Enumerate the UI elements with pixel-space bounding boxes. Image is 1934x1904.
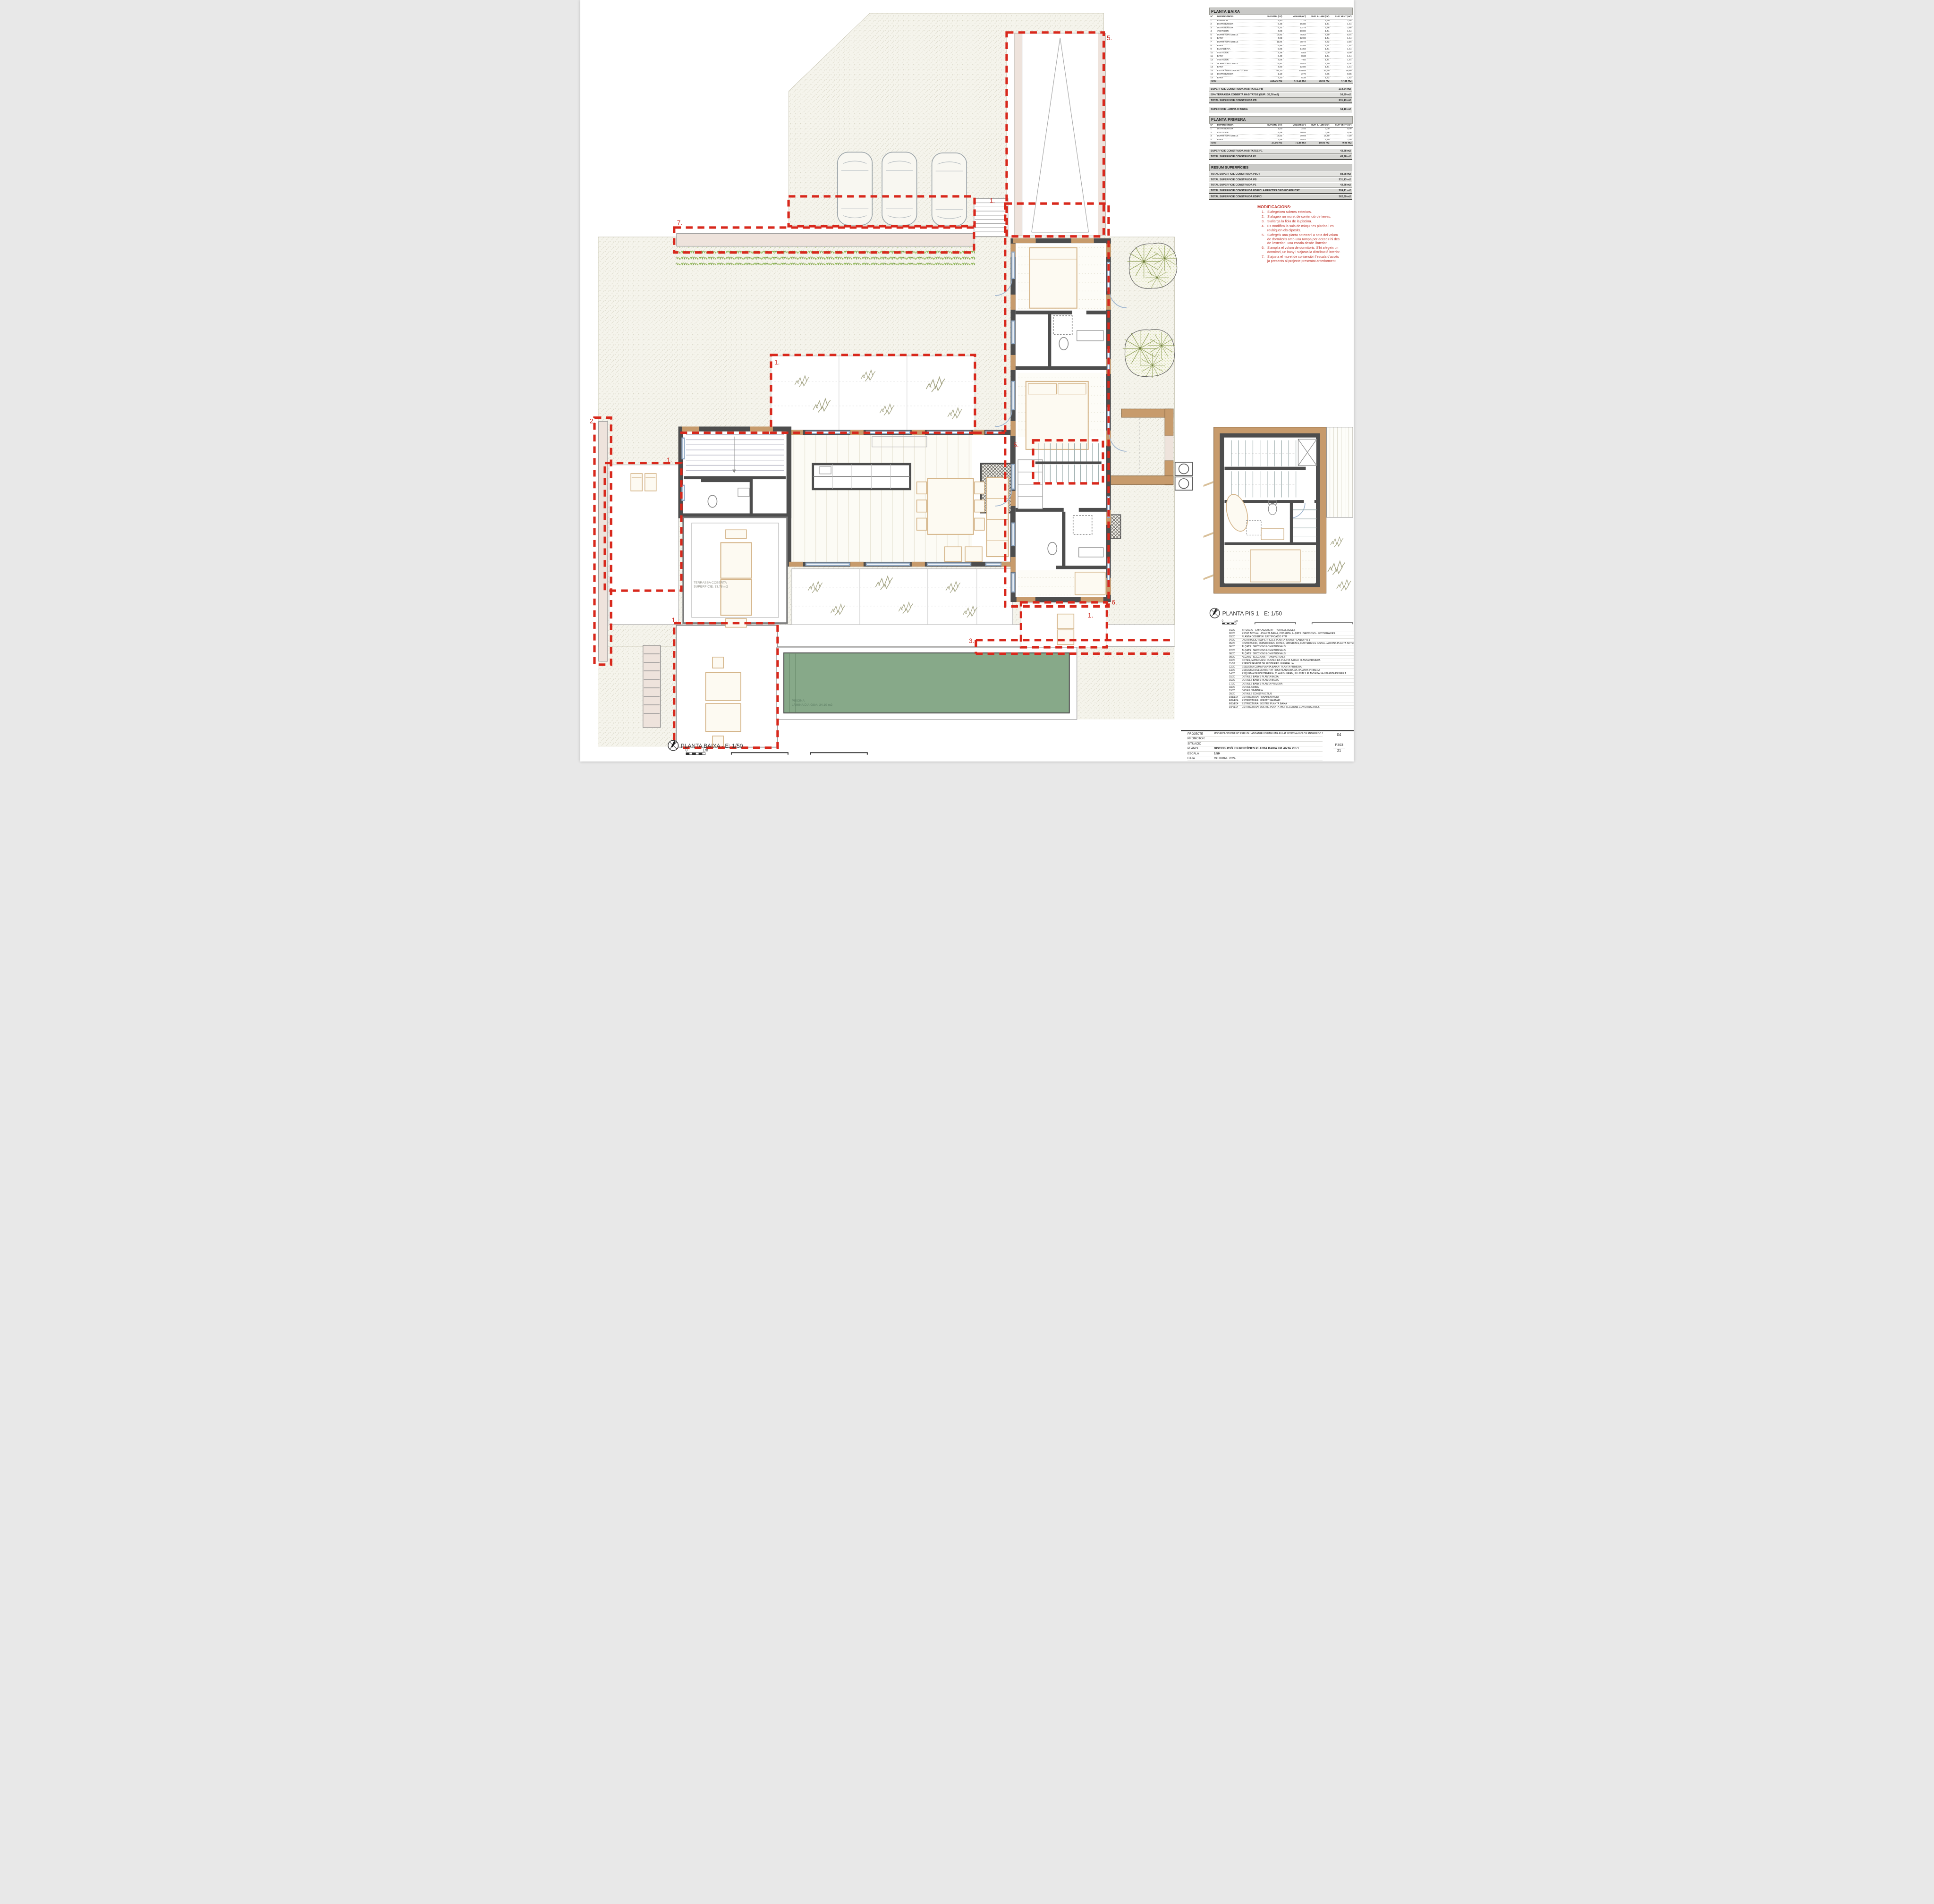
resum-title: RESUM SUPERFÍCIES bbox=[1209, 164, 1352, 171]
table-row: 8BANY5,9514,581,441,44 bbox=[1210, 44, 1353, 48]
summary-row: TOTAL SUPERFÍCIE CONSTRUÏDA EDIFICI A EF… bbox=[1209, 189, 1352, 194]
modification-item: S'afegeixen soleres exteriors. bbox=[1265, 210, 1342, 214]
modification-item: Es modifica la sala de màquines piscina … bbox=[1265, 224, 1342, 232]
kitchen-island bbox=[813, 464, 910, 489]
retaining-wall bbox=[677, 233, 974, 246]
pergola-south bbox=[792, 569, 1013, 625]
living-wing bbox=[789, 430, 1013, 567]
promoter-row: PROMOTOR bbox=[1188, 736, 1323, 741]
exterior-stair-left bbox=[643, 645, 661, 728]
drawing-index-row: E04/E04ESTRUCTURA: SOSTRE PLANTA PIS I S… bbox=[1229, 706, 1354, 709]
summary-row: SUPERFÍCIE CONSTRUÏDA HABITATGE PB214,24… bbox=[1209, 87, 1352, 92]
drawing-index-row: 01/20SITUACIÓ - EMPLAÇAMENT - PORTELL AC… bbox=[1229, 629, 1354, 632]
table-row: 16DISTRIBUÏDOR1,102,700,360,36 bbox=[1210, 73, 1353, 76]
drawing-index-row: 06/20ALÇATS I SECCIONS LONGITUDINALS bbox=[1229, 645, 1354, 649]
column-header: VOLUM (m³) bbox=[1283, 123, 1307, 127]
table-row: 2VESTIDOR4,4810,930,360,36 bbox=[1210, 131, 1353, 135]
table-row: 12VESTIDOR3,067,501,441,44 bbox=[1210, 59, 1353, 62]
table-row: TOTALS27,56 m271,88 m319,56 m29,96 m2 bbox=[1210, 142, 1353, 146]
table-row: 1REBEDOR4,8011,769,602,16 bbox=[1210, 19, 1353, 23]
summary-row: TOTAL SUPERFÍCIE CONSTRUÏDA PSOT88,28 m2 bbox=[1209, 172, 1352, 177]
drawing-sheet: 0 1m bbox=[580, 0, 1354, 762]
drawing-index-row: 09/20ALÇATS I SECCIONS TRANSVERSALS bbox=[1229, 656, 1354, 659]
drawing-index-row: 05/20DISTRIBUCIÓ, SUPERFÍCIES, COTES, MA… bbox=[1229, 642, 1354, 645]
drawing-index-row: 12/20ESQUEMA CLIMA PLANTA BAIXA I PLANTA… bbox=[1229, 666, 1354, 669]
drawing-index-row: E03/E04ESTRUCTURA: SOSTRE PLANTA BAIXA bbox=[1229, 702, 1354, 706]
callout-5b: 5. bbox=[1013, 441, 1018, 448]
bedroom-wing bbox=[995, 238, 1127, 602]
drawing-index: 01/20SITUACIÓ - EMPLAÇAMENT - PORTELL AC… bbox=[1229, 629, 1354, 709]
column-header: VOLUM (m³) bbox=[1283, 15, 1307, 19]
location-row: SITUACIÓ bbox=[1188, 742, 1323, 746]
dining-set bbox=[917, 478, 984, 534]
covered-terrace: TERRASSA COBERTA SUPERFÍCIE: 33,78 m2 bbox=[683, 517, 787, 627]
column-header: SUP. VENT (m²) bbox=[1331, 15, 1353, 19]
pis1-bed bbox=[1250, 550, 1300, 582]
drawing-index-row: 11/20ESPECEJAMENT DE FUSTERIES I FERRALL… bbox=[1229, 662, 1354, 666]
callout-1e: 1. bbox=[1088, 612, 1093, 619]
patio-left bbox=[609, 465, 679, 625]
title-block: PROJECTE MODIFICACIÓ P.BÀSIC PER UN HABI… bbox=[1181, 730, 1354, 762]
sheet-total: 21 bbox=[1325, 749, 1353, 753]
sheet-code: P303 bbox=[1325, 743, 1353, 747]
table-row: 9BUGADERIA5,9514,581,441,44 bbox=[1210, 48, 1353, 51]
table-row: 14BANY4,9012,001,441,44 bbox=[1210, 66, 1353, 69]
planta-baixa-table: PLANTA BAIXA NºDEPENDÈNCIASUP.ÚTIL (m²)V… bbox=[1209, 8, 1353, 84]
deck bbox=[1326, 427, 1353, 517]
sheet-number: 04 bbox=[1325, 733, 1353, 737]
modifications-panel: MODIFICACIONS: S'afegeixen soleres exter… bbox=[1257, 204, 1342, 264]
modification-item: S'allarga la fiola de la piscina. bbox=[1265, 220, 1342, 224]
drawing-index-row: 15/20DETALLS BANYS PLANTA BAIXA bbox=[1229, 676, 1354, 679]
pergola-north bbox=[771, 356, 975, 432]
column-header: SUP. IL·LUM (m²) bbox=[1307, 123, 1331, 127]
summary-row: 50% TERRASSA COBERTA HABITATGE (SUP.: 33… bbox=[1209, 93, 1352, 97]
entry-block bbox=[681, 426, 789, 516]
table-row: 7DORMITORI DOBLE11,8438,724,322,16 bbox=[1210, 41, 1353, 44]
pool-house bbox=[676, 626, 777, 747]
table-row: 15ESTAR / MENJADOR / CUINA64,20209,9333,… bbox=[1210, 69, 1353, 73]
planta-pis1-plan bbox=[1204, 427, 1353, 593]
terrace-note-line1: TERRASSA COBERTA bbox=[694, 581, 727, 584]
drawing-index-row: 18/20DETALL CUINA bbox=[1229, 686, 1354, 689]
retaining-wall-left bbox=[599, 422, 608, 661]
pb-summary: SUPERFÍCIE CONSTRUÏDA HABITATGE PB214,24… bbox=[1209, 87, 1352, 104]
table-row: 6BANY4,9312,081,441,44 bbox=[1210, 37, 1353, 41]
summary-row: TOTAL SUPERFÍCIE CONSTRUÏDA P143,28 m2 bbox=[1209, 154, 1352, 160]
callout-1a: 1. bbox=[990, 197, 995, 204]
column-header: SUP. IL·LUM (m²) bbox=[1307, 15, 1331, 19]
column-header: SUP. VENT (m²) bbox=[1331, 123, 1353, 127]
callout-6: 6. bbox=[1111, 599, 1117, 606]
sheet-number-cell: 04 P303 21 bbox=[1325, 733, 1353, 753]
drawing-index-row: 07/20ALÇATS I SECCIONS LONGITUDINALS bbox=[1229, 649, 1354, 652]
modifications-list: S'afegeixen soleres exteriors.S'afageix … bbox=[1257, 210, 1342, 263]
pool: PISCINA LÀMINA D'AIGUA: 34,10 m2 bbox=[777, 647, 1077, 719]
drawing-index-row: E01/E04ESTRUCTURA: FONAMENTACIÓ bbox=[1229, 696, 1354, 699]
planta-baixa-title: PLANTA BAIXA - E: 1/50 bbox=[681, 743, 743, 749]
table-row: 11BANY3,408,331,441,44 bbox=[1210, 55, 1353, 59]
callout-7: 7. bbox=[677, 220, 682, 227]
hedge bbox=[676, 247, 975, 265]
table-row: 5DORMITORI DOBLE13,9245,527,205,04 bbox=[1210, 34, 1353, 37]
pis1-window-marks bbox=[1204, 481, 1213, 580]
pool-label-line1: PISCINA bbox=[792, 699, 805, 702]
tree bbox=[1128, 243, 1178, 289]
drawing-index-row: 16/20DETALLS BANYS PLANTA BAIXA bbox=[1229, 679, 1354, 682]
basement-ramp bbox=[1015, 33, 1106, 236]
scale-row: ESCALA 1/50 bbox=[1188, 752, 1323, 756]
table-row: 4BANY7,5618,524,802,40 bbox=[1210, 138, 1353, 142]
table-row: 3DORMITORI DOBLE14,5239,9314,407,20 bbox=[1210, 135, 1353, 138]
table-row: 3DISTRIBUÏDOR5,2212,792,882,88 bbox=[1210, 26, 1353, 30]
date-row: DATA OCTUBRE 2024 bbox=[1188, 756, 1323, 761]
planta-pis1-title: PLANTA PIS 1 - E: 1/50 bbox=[1222, 610, 1282, 617]
column-header: Nº bbox=[1210, 123, 1216, 127]
column-header: SUP.ÚTIL (m²) bbox=[1260, 15, 1283, 19]
drawing-index-row: 08/20ALÇATS I SECCIONS LONGITUDINALS bbox=[1229, 652, 1354, 656]
callout-5: 5. bbox=[1107, 34, 1112, 42]
p1-summary: SUPERFÍCIE CONSTRUÏDA HABITATGE P143,28 … bbox=[1209, 149, 1352, 160]
resum-superficies: RESUM SUPERFÍCIES TOTAL SUPERFÍCIE CONST… bbox=[1209, 164, 1352, 200]
tree bbox=[1123, 330, 1175, 378]
table-title: PLANTA PRIMERA bbox=[1210, 116, 1353, 123]
summary-row: TOTAL SUPERFÍCIE CONSTRUÏDA PB231,13 m2 bbox=[1209, 178, 1352, 182]
modification-item: S'amplia el volum de dormitoris. S'hi af… bbox=[1265, 246, 1342, 254]
drawing-index-row: 13/20ESQUEMA D'ELECTRICITAT I HS3 PLANTA… bbox=[1229, 669, 1354, 672]
summary-row: SUPERFÍCIE CONSTRUÏDA HABITATGE P143,28 … bbox=[1209, 149, 1352, 154]
exterior-stair-top bbox=[974, 199, 1008, 237]
drawing-index-row: 03/20PLANTA COBERTA I JUSTIFICACIÓ PTM bbox=[1229, 635, 1354, 639]
callout-1b: 1. bbox=[774, 359, 780, 366]
water-surface-summary: SUPERFÍCIE LÀMINA D'AIGUA34,10 m2 bbox=[1209, 107, 1352, 112]
table-row: 4VESTIDOR4,0810,001,441,44 bbox=[1210, 30, 1353, 34]
drawing-index-row: 10/20COTES, MATERIALS I FUSTERIES PLANTA… bbox=[1229, 659, 1354, 662]
drawing-index-row: 20/20DETALLS CONSTRUCTIUS bbox=[1229, 693, 1354, 696]
callout-1c: 1. bbox=[667, 457, 672, 464]
modification-item: S'afageix un muret de contenció de terre… bbox=[1265, 215, 1342, 219]
table-row: 2DISTRIBUÏDOR6,4815,881,441,44 bbox=[1210, 23, 1353, 26]
column-header: DEPENDÈNCIA bbox=[1216, 123, 1260, 127]
modifications-title: MODIFICACIONS: bbox=[1257, 204, 1342, 209]
table-title: PLANTA BAIXA bbox=[1210, 8, 1353, 15]
summary-row: SUPERFÍCIE LÀMINA D'AIGUA34,10 m2 bbox=[1209, 107, 1352, 112]
callout-1d: 1. bbox=[671, 617, 677, 624]
table-row: 10VESTIDOR2,385,830,000,00 bbox=[1210, 51, 1353, 55]
summary-row: TOTAL SUPERFÍCIE CONSTRUÏDA P143,28 m2 bbox=[1209, 183, 1352, 188]
drawing-index-row: 14/20ESQUEMA DE FONTANERIA, CLAVEGUERAM,… bbox=[1229, 672, 1354, 676]
summary-row: TOTAL SUPERFÍCIE CONSTRUÏDA EDIFICI362,6… bbox=[1209, 195, 1352, 200]
modification-item: S'afegeix una planta soterrani a sota de… bbox=[1265, 233, 1342, 245]
column-header: DEPENDÈNCIA bbox=[1216, 15, 1260, 19]
modification-item: S'ajusta el muret de contenció i l'escal… bbox=[1265, 255, 1342, 263]
table-row: 13DORMITORI DOBLE13,9245,527,205,04 bbox=[1210, 62, 1353, 66]
surface-tables-panel: PLANTA BAIXA NºDEPENDÈNCIASUP.ÚTIL (m²)V… bbox=[1209, 8, 1352, 204]
sheet-name-row: PLÀNOL DISTRIBUCIÓ I SUPERFÍCIES PLANTA … bbox=[1188, 746, 1323, 751]
drawing-index-row: 17/20DETALLS BANYS PLANTA PRIMERA bbox=[1229, 683, 1354, 686]
summary-row: TOTAL SUPERFÍCIE CONSTRUÏDA PB231,13 m2 bbox=[1209, 98, 1352, 103]
drawing-index-row: 19/20DETALL XIMENEIA bbox=[1229, 689, 1354, 693]
column-header: SUP.ÚTIL (m²) bbox=[1260, 123, 1283, 127]
callout-2: 2. bbox=[590, 418, 595, 425]
project-row: PROJECTE MODIFICACIÓ P.BÀSIC PER UN HABI… bbox=[1188, 732, 1323, 736]
table-row: TOTALS158,36 m2473,16 m378,60 m247,88 m2 bbox=[1210, 80, 1353, 84]
table-row: 1DISTRIBUÏDOR1,002,450,000,00 bbox=[1210, 127, 1353, 131]
callout-3: 3. bbox=[969, 637, 974, 644]
table-row: 17BANY2,205,391,921,92 bbox=[1210, 76, 1353, 80]
drawing-index-row: 04/20DISTRIBUCIÓ I SUPERFÍCIES PLANTA BA… bbox=[1229, 639, 1354, 642]
drawing-index-row: 02/20ESTAT ACTUAL - PLANTA BAIXA, COBERT… bbox=[1229, 632, 1354, 635]
drawing-index-row: E02/E04ESTRUCTURA: FORJAT SANITARI bbox=[1229, 699, 1354, 702]
column-header: Nº bbox=[1210, 15, 1216, 19]
planta-primera-table: PLANTA PRIMERA NºDEPENDÈNCIASUP.ÚTIL (m²… bbox=[1209, 116, 1353, 146]
water-tanks bbox=[1175, 462, 1193, 490]
